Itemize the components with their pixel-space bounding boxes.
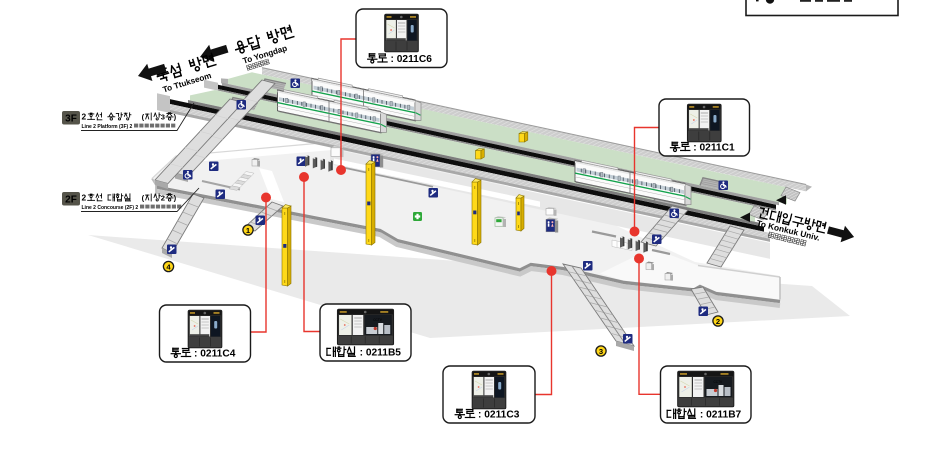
svg-text:CCTV: CCTV — [714, 380, 724, 384]
svg-text:: 0211C4: : 0211C4 — [191, 348, 236, 359]
svg-text:2: 2 — [161, 193, 165, 202]
svg-text:: 0211B7: : 0211B7 — [697, 409, 742, 420]
svg-text:3: 3 — [161, 112, 165, 121]
svg-text:CCTV: CCTV — [373, 318, 383, 322]
svg-text:: 0211B5: : 0211B5 — [357, 347, 402, 358]
svg-text:3F: 3F — [65, 114, 77, 125]
svg-text:Line 2 Concourse (2F) 2: Line 2 Concourse (2F) 2 — [82, 205, 139, 211]
svg-text:: 0211C1: : 0211C1 — [690, 142, 735, 153]
svg-text:Line 2 Platform (3F) 2: Line 2 Platform (3F) 2 — [82, 124, 133, 130]
svg-text:: 0211C6: : 0211C6 — [388, 54, 433, 65]
svg-text:3: 3 — [599, 347, 603, 356]
svg-text:2F: 2F — [65, 195, 77, 206]
svg-text:2: 2 — [82, 193, 87, 203]
svg-text:: 0211C3: : 0211C3 — [475, 409, 520, 420]
svg-text:2: 2 — [716, 317, 720, 326]
svg-text:2: 2 — [82, 112, 87, 122]
